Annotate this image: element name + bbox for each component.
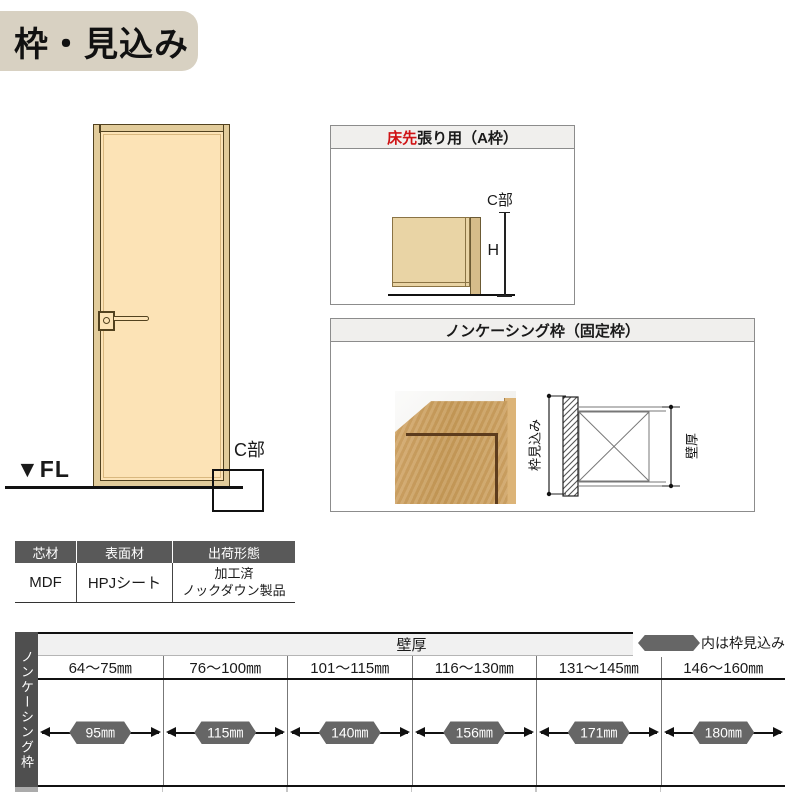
arrow-right-icon bbox=[649, 727, 659, 737]
frame-depth-badge: 95㎜ bbox=[69, 721, 131, 744]
wall-range-row: 64～75㎜76～100㎜101～115㎜116～130㎜131～145㎜146… bbox=[38, 656, 785, 680]
wall-range-cell: 131～145㎜ bbox=[536, 656, 661, 678]
door-corner-photo bbox=[395, 391, 516, 504]
c-section-label: C部 bbox=[234, 436, 265, 462]
wall-thickness-header-row: 壁厚 内は枠見込み bbox=[38, 634, 785, 656]
material-spec-table: 芯材表面材出荷形態 MDFHPJシート加工済 ノックダウン製品 bbox=[15, 541, 295, 603]
c-section-callout-box bbox=[212, 469, 264, 512]
spec-value-cell: HPJシート bbox=[77, 563, 173, 602]
arrow-right-icon bbox=[524, 727, 534, 737]
table-cutoff-hint bbox=[15, 787, 38, 792]
arrow-right-icon bbox=[400, 727, 410, 737]
frame-depth-cell: 140㎜ bbox=[287, 680, 412, 785]
frame-depth-badge: 171㎜ bbox=[568, 721, 630, 744]
table-cutoff-tick bbox=[660, 787, 662, 792]
frame-depth-cell: 95㎜ bbox=[38, 680, 163, 785]
wall-range-cell: 64～75㎜ bbox=[38, 656, 163, 678]
panel-a-door-edge-h bbox=[393, 282, 469, 283]
spec-header-cell: 芯材 bbox=[15, 541, 77, 563]
frame-depth-badge: 140㎜ bbox=[319, 721, 381, 744]
table-cutoff-tick bbox=[535, 787, 537, 792]
table-cutoff-tick bbox=[286, 787, 288, 792]
frame-depth-badge: 156㎜ bbox=[443, 721, 505, 744]
door-leaf-edge-line bbox=[103, 134, 221, 478]
page-title: 枠・見込み bbox=[14, 17, 189, 66]
frame-depth-cell: 115㎜ bbox=[163, 680, 288, 785]
frame-depth-badge: 115㎜ bbox=[194, 721, 256, 744]
spec-value-cell: MDF bbox=[15, 563, 77, 602]
panel-a-frame: 床先張り用（A枠） C部 H bbox=[330, 125, 575, 305]
panel-noncasing-header: ノンケーシング枠（固定枠） bbox=[331, 319, 754, 342]
wall-thickness-dim-label: 壁厚 bbox=[685, 433, 700, 459]
frame-depth-cell: 171㎜ bbox=[536, 680, 661, 785]
panel-a-diagram: C部 H bbox=[331, 149, 574, 304]
panel-a-h-label: H bbox=[481, 242, 499, 260]
frame-depth-row: 95㎜115㎜140㎜156㎜171㎜180㎜ bbox=[38, 680, 785, 785]
door-frame bbox=[93, 124, 230, 487]
panel-a-door-edge-v bbox=[465, 218, 466, 286]
table-cutoff-tick bbox=[162, 787, 164, 792]
floor-line bbox=[5, 486, 243, 489]
frame-depth-dim-label: 枠見込み bbox=[528, 419, 543, 471]
arrow-right-icon bbox=[773, 727, 783, 737]
page-title-block: 枠・見込み bbox=[0, 11, 198, 71]
panel-a-title-rest: 張り用（A枠） bbox=[417, 127, 518, 148]
panel-noncasing-title: ノンケーシング枠（固定枠） bbox=[445, 320, 640, 341]
photo-groove-line bbox=[406, 433, 498, 504]
door-handle-plate bbox=[98, 311, 115, 331]
spec-table-header-row: 芯材表面材出荷形態 bbox=[15, 541, 295, 563]
wall-thickness-table: ノンケーシング枠 壁厚 内は枠見込み 64～75㎜76～100㎜101～115㎜… bbox=[15, 632, 785, 787]
legend-hexagon-icon bbox=[638, 635, 700, 651]
frame-depth-cell: 180㎜ bbox=[661, 680, 786, 785]
frame-depth-cell: 156㎜ bbox=[412, 680, 537, 785]
panel-noncasing-body: 枠見込み 壁厚 bbox=[331, 342, 754, 511]
door-leaf bbox=[100, 131, 224, 481]
arrow-right-icon bbox=[151, 727, 161, 737]
wall-range-cell: 146～160㎜ bbox=[661, 656, 786, 678]
frame-depth-badge: 180㎜ bbox=[692, 721, 754, 744]
wall-range-cell: 116～130㎜ bbox=[412, 656, 537, 678]
spec-header-cell: 出荷形態 bbox=[173, 541, 295, 563]
frame-cross-section-diagram: 枠見込み 壁厚 bbox=[526, 382, 711, 527]
catalog-page: 枠・見込み ▼FL C部 床先張り用（A枠） bbox=[0, 0, 800, 800]
arrow-right-icon bbox=[275, 727, 285, 737]
panel-a-dim-tick-bottom bbox=[497, 295, 512, 297]
arrow-left-icon bbox=[664, 727, 674, 737]
arrow-left-icon bbox=[539, 727, 549, 737]
panel-a-frame-strip bbox=[470, 217, 481, 296]
door-handle-rose-icon bbox=[103, 317, 110, 324]
panel-a-title-highlight: 床先 bbox=[387, 127, 417, 148]
panel-noncasing: ノンケーシング枠（固定枠） 枠見込み bbox=[330, 318, 755, 512]
spec-header-cell: 表面材 bbox=[77, 541, 173, 563]
arrow-left-icon bbox=[290, 727, 300, 737]
wall-range-cell: 76～100㎜ bbox=[163, 656, 288, 678]
arrow-left-icon bbox=[166, 727, 176, 737]
spec-value-cell: 加工済 ノックダウン製品 bbox=[173, 563, 295, 602]
legend: 内は枠見込み bbox=[633, 629, 785, 657]
wall-range-cell: 101～115㎜ bbox=[287, 656, 412, 678]
table-main: 壁厚 内は枠見込み 64～75㎜76～100㎜101～115㎜116～130㎜1… bbox=[38, 632, 785, 787]
panel-a-floor-line bbox=[388, 294, 515, 296]
floor-level-label: ▼FL bbox=[16, 456, 70, 483]
arrow-left-icon bbox=[40, 727, 50, 737]
panel-a-dimension-line bbox=[504, 212, 506, 296]
frame-section-hatch bbox=[563, 397, 578, 496]
panel-a-header: 床先張り用（A枠） bbox=[331, 126, 574, 149]
arrow-left-icon bbox=[415, 727, 425, 737]
spec-table-value-row: MDFHPJシート加工済 ノックダウン製品 bbox=[15, 563, 295, 602]
panel-a-dim-tick-top bbox=[499, 212, 510, 214]
table-cutoff-tick bbox=[411, 787, 413, 792]
legend-label: 内は枠見込み bbox=[701, 633, 785, 653]
table-row-label: ノンケーシング枠 bbox=[15, 632, 38, 787]
panel-a-door-section bbox=[392, 217, 470, 287]
wall-thickness-header: 壁厚 bbox=[396, 634, 426, 655]
door-handle-lever bbox=[113, 316, 149, 321]
panel-a-c-label: C部 bbox=[487, 189, 513, 210]
